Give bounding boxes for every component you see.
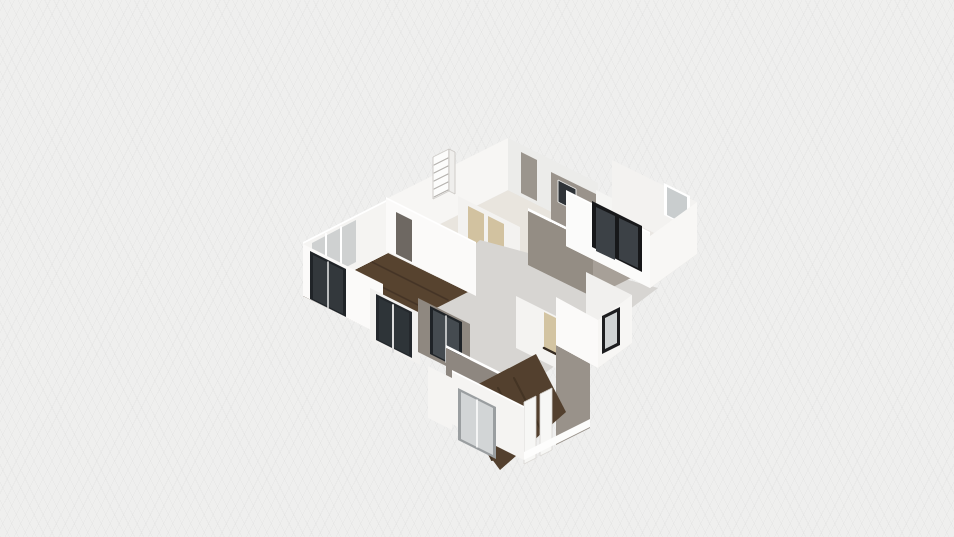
floorplan-3d-viewport[interactable] — [0, 0, 954, 537]
small-room-window-glass — [605, 312, 617, 349]
right-room-sliding-door-glass-1 — [596, 207, 615, 260]
top-cluster-doorway-sw — [396, 212, 412, 262]
top-cluster-doorway — [521, 152, 537, 201]
wire-shelf-back — [433, 149, 449, 199]
floorplan-svg — [0, 0, 954, 537]
wire-shelf-side — [449, 149, 455, 194]
